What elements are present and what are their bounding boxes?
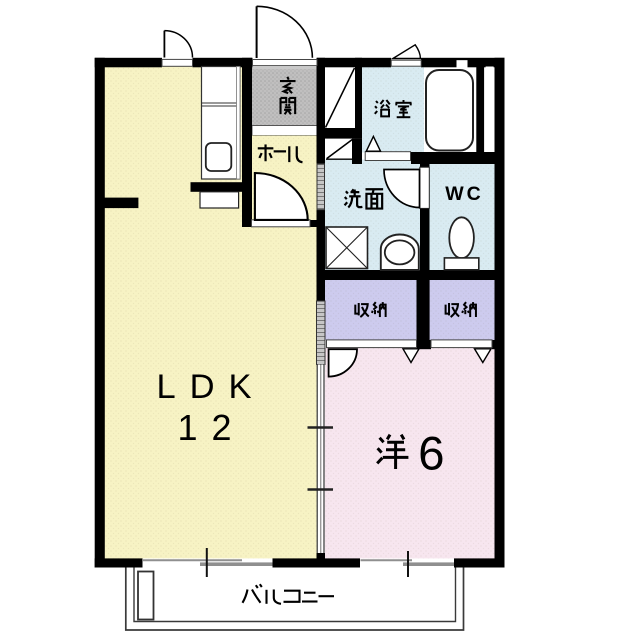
svg-text:LDK: LDK <box>156 368 265 406</box>
svg-text:WC: WC <box>445 183 484 205</box>
svg-text:12: 12 <box>177 407 245 448</box>
svg-text:6: 6 <box>418 428 444 481</box>
